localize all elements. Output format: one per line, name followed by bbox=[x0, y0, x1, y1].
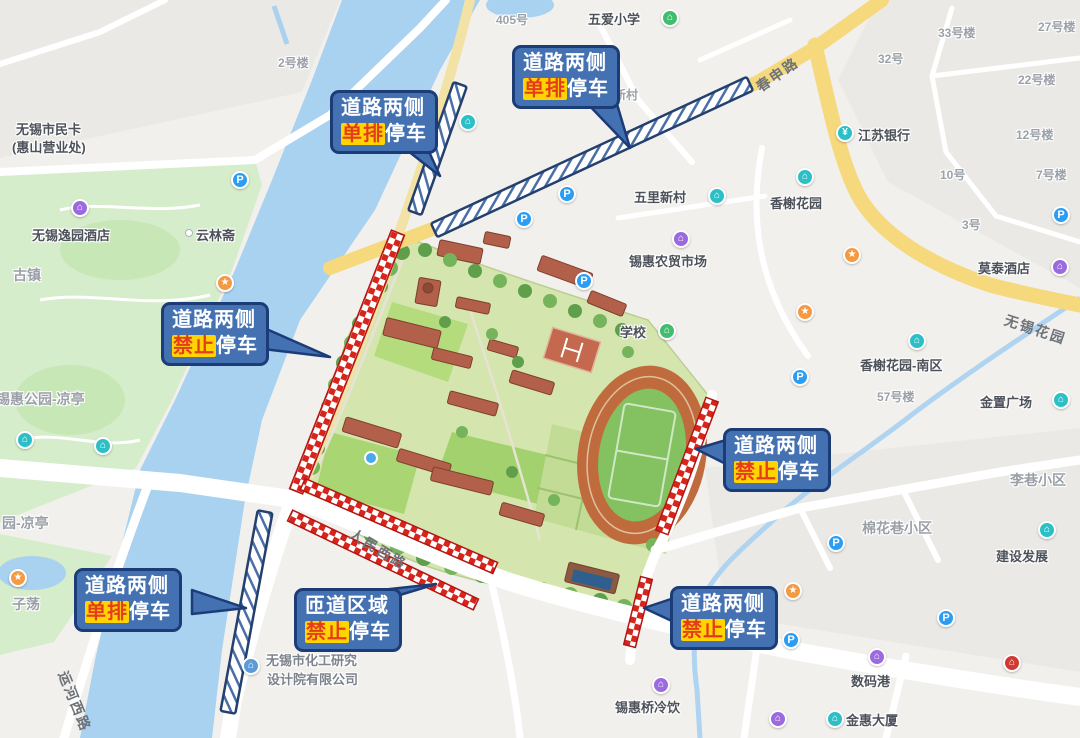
hotel-icon: ⌂ bbox=[71, 199, 89, 217]
parking-icon: P bbox=[791, 368, 809, 386]
callout-bottom-right-no-parking: 道路两侧 禁止停车 bbox=[670, 586, 778, 650]
school-icon: ⌂ bbox=[658, 322, 676, 340]
poi-label: 无锡市民卡 bbox=[16, 119, 81, 138]
callout-line1: 匝道区域 bbox=[305, 593, 391, 619]
poi-label: 锡惠农贸市场 bbox=[629, 251, 707, 270]
callout-line2: 禁止停车 bbox=[305, 619, 391, 645]
callout-suffix: 停车 bbox=[129, 601, 171, 623]
callout-line1: 道路两侧 bbox=[681, 591, 767, 617]
poi-label: 7号楼 bbox=[1036, 166, 1067, 183]
callout-bottom-center-ramp-no-parking: 匝道区域 禁止停车 bbox=[294, 588, 402, 652]
callout-highlight: 单排 bbox=[85, 601, 129, 623]
poi-label: 3号 bbox=[962, 216, 981, 233]
poi-label: 设计院有限公司 bbox=[267, 669, 358, 688]
callout-suffix: 停车 bbox=[349, 621, 391, 643]
callout-line1: 道路两侧 bbox=[523, 50, 609, 76]
parking-icon: P bbox=[827, 534, 845, 552]
poi-label: 莫泰酒店 bbox=[978, 258, 1030, 277]
poi-label: 33号楼 bbox=[938, 24, 975, 41]
poi-label: 405号 bbox=[496, 11, 528, 28]
poi-label: 五爱小学 bbox=[588, 9, 640, 28]
poi-dot bbox=[185, 229, 193, 237]
callout-line2: 禁止停车 bbox=[734, 459, 820, 485]
callout-left-middle-no-parking: 道路两侧 禁止停车 bbox=[161, 302, 269, 366]
park-poi-icon: ⌂ bbox=[16, 431, 34, 449]
poi-label: 园-凉亭 bbox=[2, 513, 49, 533]
callout-top-center-single-row: 道路两侧 单排停车 bbox=[512, 45, 620, 109]
poi-label: 22号楼 bbox=[1018, 71, 1055, 88]
parking-icon: P bbox=[782, 631, 800, 649]
callout-suffix: 停车 bbox=[216, 335, 258, 357]
poi-label: 27号楼 bbox=[1038, 18, 1075, 35]
callout-highlight: 禁止 bbox=[734, 461, 778, 483]
callout-line2: 单排停车 bbox=[85, 599, 171, 625]
poi-label: 古镇 bbox=[13, 265, 41, 285]
restaurant-icon: ★ bbox=[784, 582, 802, 600]
callout-line2: 单排停车 bbox=[341, 121, 427, 147]
parking-icon: P bbox=[1052, 206, 1070, 224]
callout-suffix: 停车 bbox=[778, 461, 820, 483]
callout-upper-left-single-row: 道路两侧 单排停车 bbox=[330, 90, 438, 154]
callout-highlight: 单排 bbox=[341, 123, 385, 145]
mall-icon: ⌂ bbox=[868, 648, 886, 666]
callout-line1: 道路两侧 bbox=[172, 307, 258, 333]
poi-label: 锡惠公园-凉亭 bbox=[0, 389, 85, 409]
building-icon: ⌂ bbox=[1038, 521, 1056, 539]
parking-icon: P bbox=[937, 609, 955, 627]
community-icon: ⌂ bbox=[908, 332, 926, 350]
poi-label: 金惠大厦 bbox=[846, 710, 898, 729]
poi-label: 学校 bbox=[620, 322, 646, 341]
bank-icon: ⌂ bbox=[1003, 654, 1021, 672]
callout-suffix: 停车 bbox=[567, 78, 609, 100]
poi-label: 云林斋 bbox=[196, 225, 235, 244]
community-icon: ⌂ bbox=[708, 187, 726, 205]
bank-icon: ¥ bbox=[836, 124, 854, 142]
scenic-icon: ★ bbox=[9, 569, 27, 587]
restaurant-icon: ★ bbox=[796, 303, 814, 321]
poi-label: 江苏银行 bbox=[858, 125, 910, 144]
callout-line2: 禁止停车 bbox=[681, 617, 767, 643]
callout-line1: 道路两侧 bbox=[341, 95, 427, 121]
park-poi-icon: ⌂ bbox=[94, 437, 112, 455]
poi-label: 无锡逸园酒店 bbox=[32, 225, 110, 244]
callout-highlight: 禁止 bbox=[172, 335, 216, 357]
shop-icon: ⌂ bbox=[652, 676, 670, 694]
poi-label: 数码港 bbox=[851, 671, 890, 690]
parking-icon: P bbox=[558, 185, 576, 203]
poi-label: 57号楼 bbox=[877, 388, 914, 405]
poi-label: 金置广场 bbox=[980, 392, 1032, 411]
poi-label: (惠山营业处) bbox=[12, 137, 86, 156]
poi-label: 子荡 bbox=[12, 594, 40, 614]
plaza-icon: ⌂ bbox=[1052, 391, 1070, 409]
poi-label: 建设发展 bbox=[996, 546, 1048, 565]
callout-line2: 单排停车 bbox=[523, 76, 609, 102]
callout-highlight: 单排 bbox=[523, 78, 567, 100]
scenic-icon: ★ bbox=[216, 274, 234, 292]
poi-label: 10号 bbox=[940, 166, 965, 183]
school-icon: ⌂ bbox=[661, 9, 679, 27]
callout-line1: 道路两侧 bbox=[734, 433, 820, 459]
poi-label: 五里新村 bbox=[634, 187, 686, 206]
callout-line1: 道路两侧 bbox=[85, 573, 171, 599]
callout-highlight: 禁止 bbox=[681, 619, 725, 641]
poi-label: 无锡市化工研究 bbox=[266, 650, 357, 669]
building-icon: ⌂ bbox=[826, 710, 844, 728]
poi-label: 香榭花园-南区 bbox=[860, 355, 942, 374]
poi-label: 12号楼 bbox=[1016, 126, 1053, 143]
parking-icon: P bbox=[231, 171, 249, 189]
callout-highlight: 禁止 bbox=[305, 621, 349, 643]
callout-right-middle-no-parking: 道路两侧 禁止停车 bbox=[723, 428, 831, 492]
callout-line2: 禁止停车 bbox=[172, 333, 258, 359]
company-icon: ⌂ bbox=[242, 657, 260, 675]
annotated-parking-map: P P P P P P P P P ⌂ ⌂ ⌂ ⌂ ⌂ ⌂ ⌂ ⌂ ⌂ ¥ ⌂ … bbox=[0, 0, 1080, 738]
car-entrance-icon: ⌂ bbox=[459, 113, 477, 131]
poi-label: 李巷小区 bbox=[1010, 470, 1066, 490]
parking-icon: P bbox=[575, 272, 593, 290]
poi-label: 2号楼 bbox=[278, 54, 309, 71]
parking-icon: P bbox=[515, 210, 533, 228]
community-icon: ⌂ bbox=[796, 168, 814, 186]
poi-label: 棉花巷小区 bbox=[862, 518, 932, 538]
hotel-icon: ⌂ bbox=[1051, 258, 1069, 276]
callout-suffix: 停车 bbox=[725, 619, 767, 641]
callout-suffix: 停车 bbox=[385, 123, 427, 145]
poi-label: 32号 bbox=[878, 50, 903, 67]
market-icon: ⌂ bbox=[672, 230, 690, 248]
shop-icon: ⌂ bbox=[769, 710, 787, 728]
poi-label: 香榭花园 bbox=[770, 193, 822, 212]
poi-label: 锡惠桥冷饮 bbox=[615, 697, 680, 716]
callout-bottom-left-single-row: 道路两侧 单排停车 bbox=[74, 568, 182, 632]
restaurant-icon: ★ bbox=[843, 246, 861, 264]
